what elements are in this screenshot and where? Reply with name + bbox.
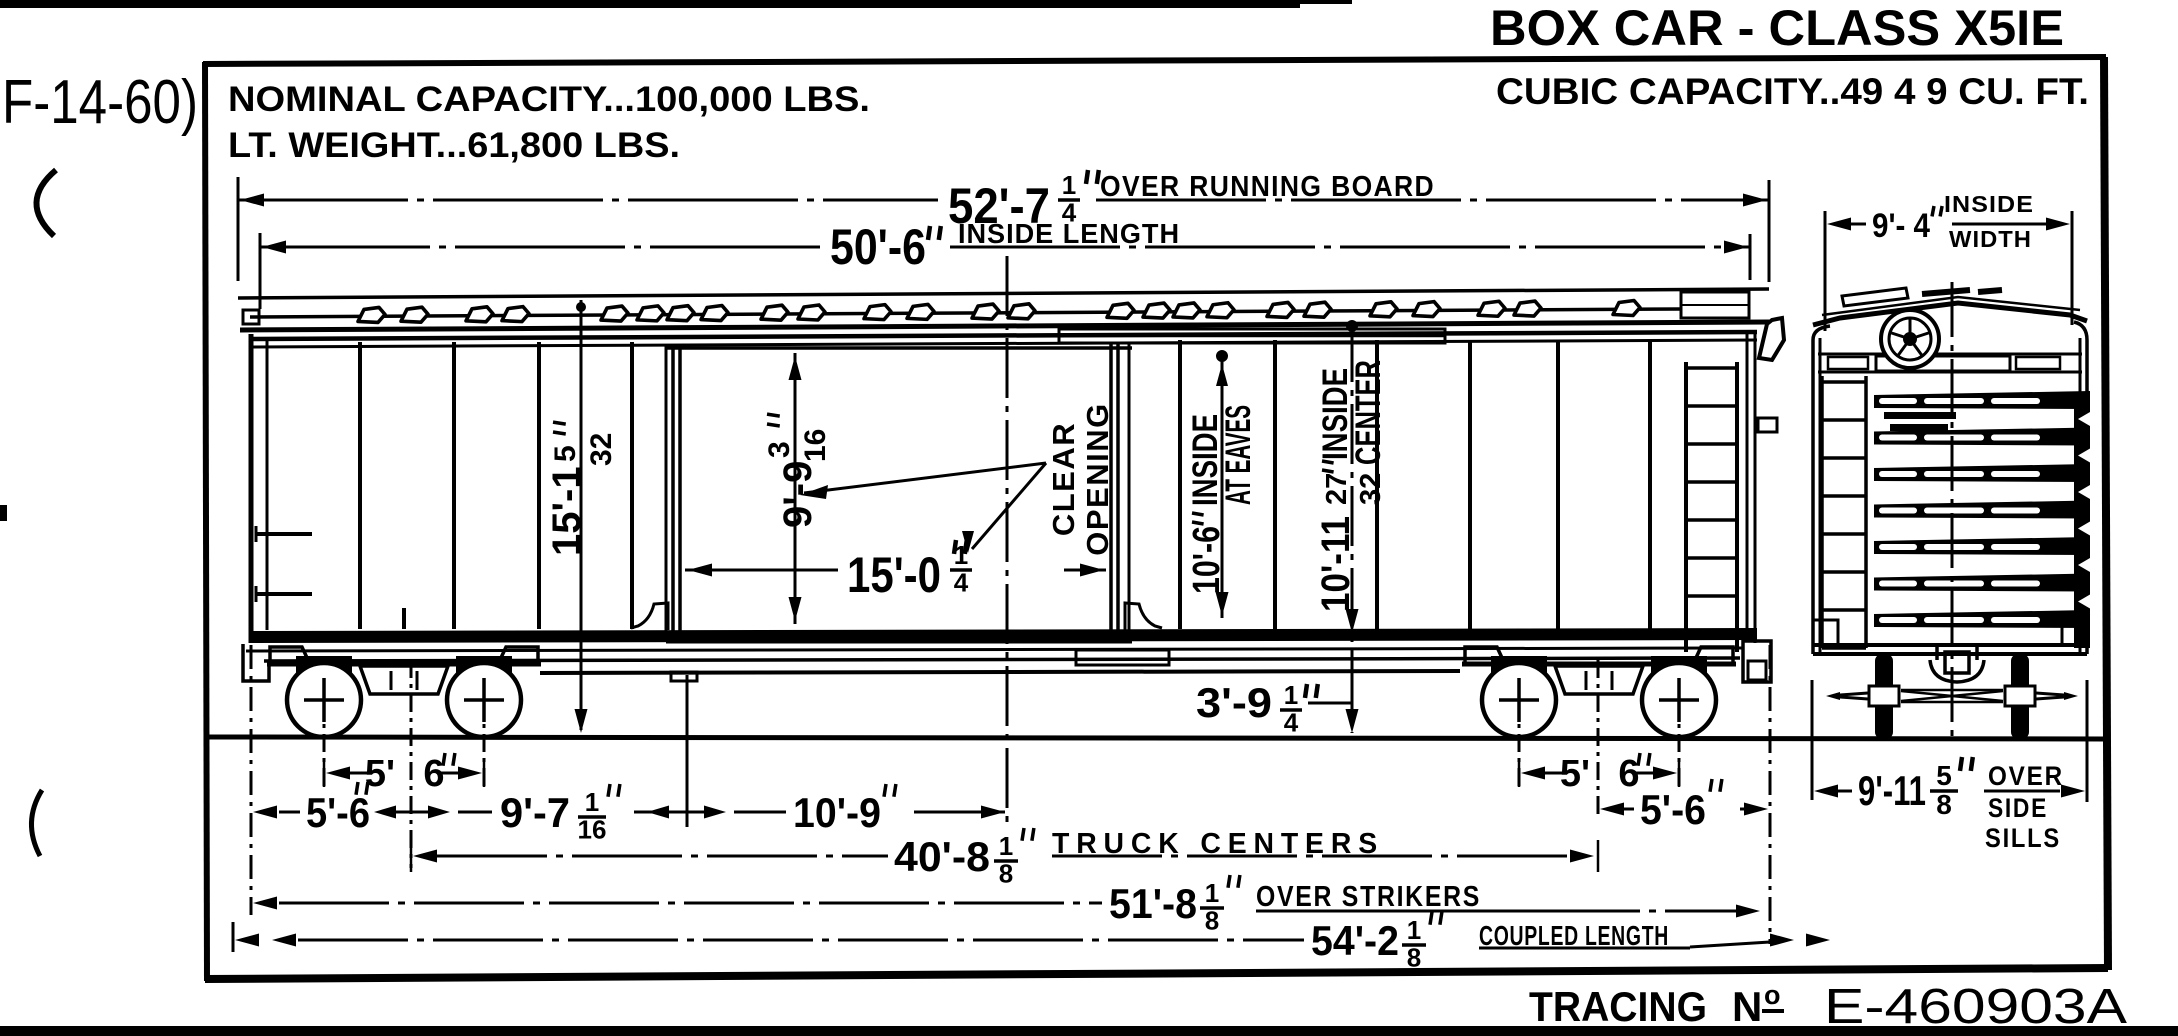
svg-text:3: 3 (763, 441, 796, 458)
svg-text:32: 32 (1355, 473, 1387, 505)
svg-text:INSIDE LENGTH: INSIDE LENGTH (958, 218, 1180, 249)
svg-text:SILLS: SILLS (1985, 823, 2061, 853)
svg-text:1: 1 (585, 787, 599, 817)
svg-text:5': 5' (1560, 753, 1590, 795)
svg-text:NOMINAL CAPACITY...100,000 L: NOMINAL CAPACITY...100,000 LBS. (228, 80, 870, 119)
svg-text:COUPLED LENGTH: COUPLED LENGTH (1479, 920, 1669, 951)
svg-text:1: 1 (999, 831, 1013, 861)
svg-text:OVER: OVER (1988, 761, 2064, 791)
svg-text:50'-6: 50'-6 (830, 219, 926, 275)
svg-text:6: 6 (1618, 753, 1639, 795)
svg-text:TRACING: TRACING (1529, 983, 1707, 1030)
svg-text:4: 4 (954, 567, 969, 597)
svg-text:8: 8 (1407, 942, 1421, 972)
svg-text:1: 1 (1407, 915, 1421, 945)
svg-text:9'-11: 9'-11 (1858, 767, 1926, 814)
svg-text:LT. WEIGHT...61,800 LBS.: LT. WEIGHT...61,800 LBS. (228, 126, 680, 165)
svg-text:AT EAVES: AT EAVES (1219, 405, 1258, 505)
svg-text:8: 8 (1936, 789, 1952, 820)
svg-text:SIDE: SIDE (1988, 793, 2048, 823)
svg-text:4: 4 (1284, 707, 1299, 737)
svg-text:32: 32 (585, 433, 618, 466)
svg-text:8: 8 (999, 858, 1013, 888)
svg-text:o: o (1764, 980, 1781, 1010)
svg-text:27: 27 (1321, 473, 1353, 505)
svg-text:10'-6: 10'-6 (1186, 526, 1228, 594)
svg-text:9'- 4: 9'- 4 (1872, 207, 1930, 245)
svg-text:1: 1 (1205, 878, 1219, 908)
svg-text:15'-1: 15'-1 (545, 466, 589, 556)
svg-text:WIDTH: WIDTH (1949, 226, 2032, 252)
svg-text:OVER RUNNING BOARD: OVER RUNNING BOARD (1100, 171, 1435, 203)
svg-text:15'-0: 15'-0 (847, 547, 941, 603)
svg-text:E-460903A: E-460903A (1824, 980, 2127, 1034)
svg-text:BOX CAR - CLASS X5IE: BOX CAR - CLASS X5IE (1490, 0, 2064, 56)
svg-text:10'-11: 10'-11 (1314, 516, 1358, 612)
svg-text:5: 5 (1936, 760, 1952, 791)
svg-text:F-14-60): F-14-60) (2, 68, 198, 137)
svg-text:CLEAR: CLEAR (1046, 422, 1081, 536)
svg-text:51'-8: 51'-8 (1109, 880, 1197, 927)
svg-text:16: 16 (578, 814, 607, 844)
svg-text:6: 6 (423, 753, 444, 795)
svg-text:CENTER: CENTER (1349, 360, 1388, 465)
svg-text:CUBIC CAPACITY..49 4 9 CU. F: CUBIC CAPACITY..49 4 9 CU. FT. (1496, 71, 2089, 112)
svg-text:5'-6: 5'-6 (1640, 786, 1706, 833)
svg-text:INSIDE: INSIDE (1944, 191, 2034, 217)
svg-text:10'-9: 10'-9 (793, 789, 881, 836)
svg-text:N: N (1732, 983, 1762, 1030)
svg-text:1: 1 (1062, 170, 1076, 200)
svg-text:5'-6: 5'-6 (306, 789, 370, 836)
svg-text:54'-2: 54'-2 (1311, 917, 1399, 964)
svg-text:3'-9: 3'-9 (1196, 679, 1272, 726)
svg-text:40'-8: 40'-8 (894, 833, 990, 880)
svg-text:5: 5 (549, 445, 582, 462)
svg-text:OPENING: OPENING (1080, 402, 1115, 555)
svg-text:8: 8 (1205, 905, 1219, 935)
svg-text:OVER STRIKERS: OVER STRIKERS (1256, 881, 1481, 913)
svg-text:9'-7: 9'-7 (500, 789, 570, 836)
svg-text:1: 1 (1284, 680, 1298, 710)
svg-text:16: 16 (799, 429, 832, 462)
